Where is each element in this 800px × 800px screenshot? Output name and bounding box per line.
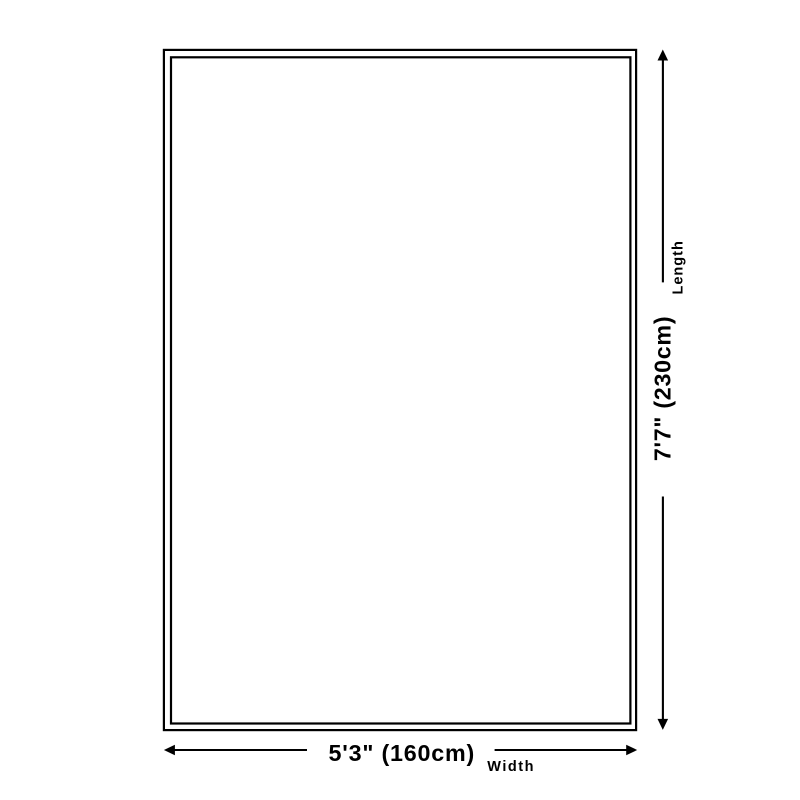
svg-text:5'3" (160cm): 5'3" (160cm) [328, 740, 475, 766]
svg-text:Length: Length [670, 240, 686, 294]
svg-text:7'7" (230cm): 7'7" (230cm) [650, 316, 676, 461]
svg-text:Width: Width [487, 759, 535, 775]
